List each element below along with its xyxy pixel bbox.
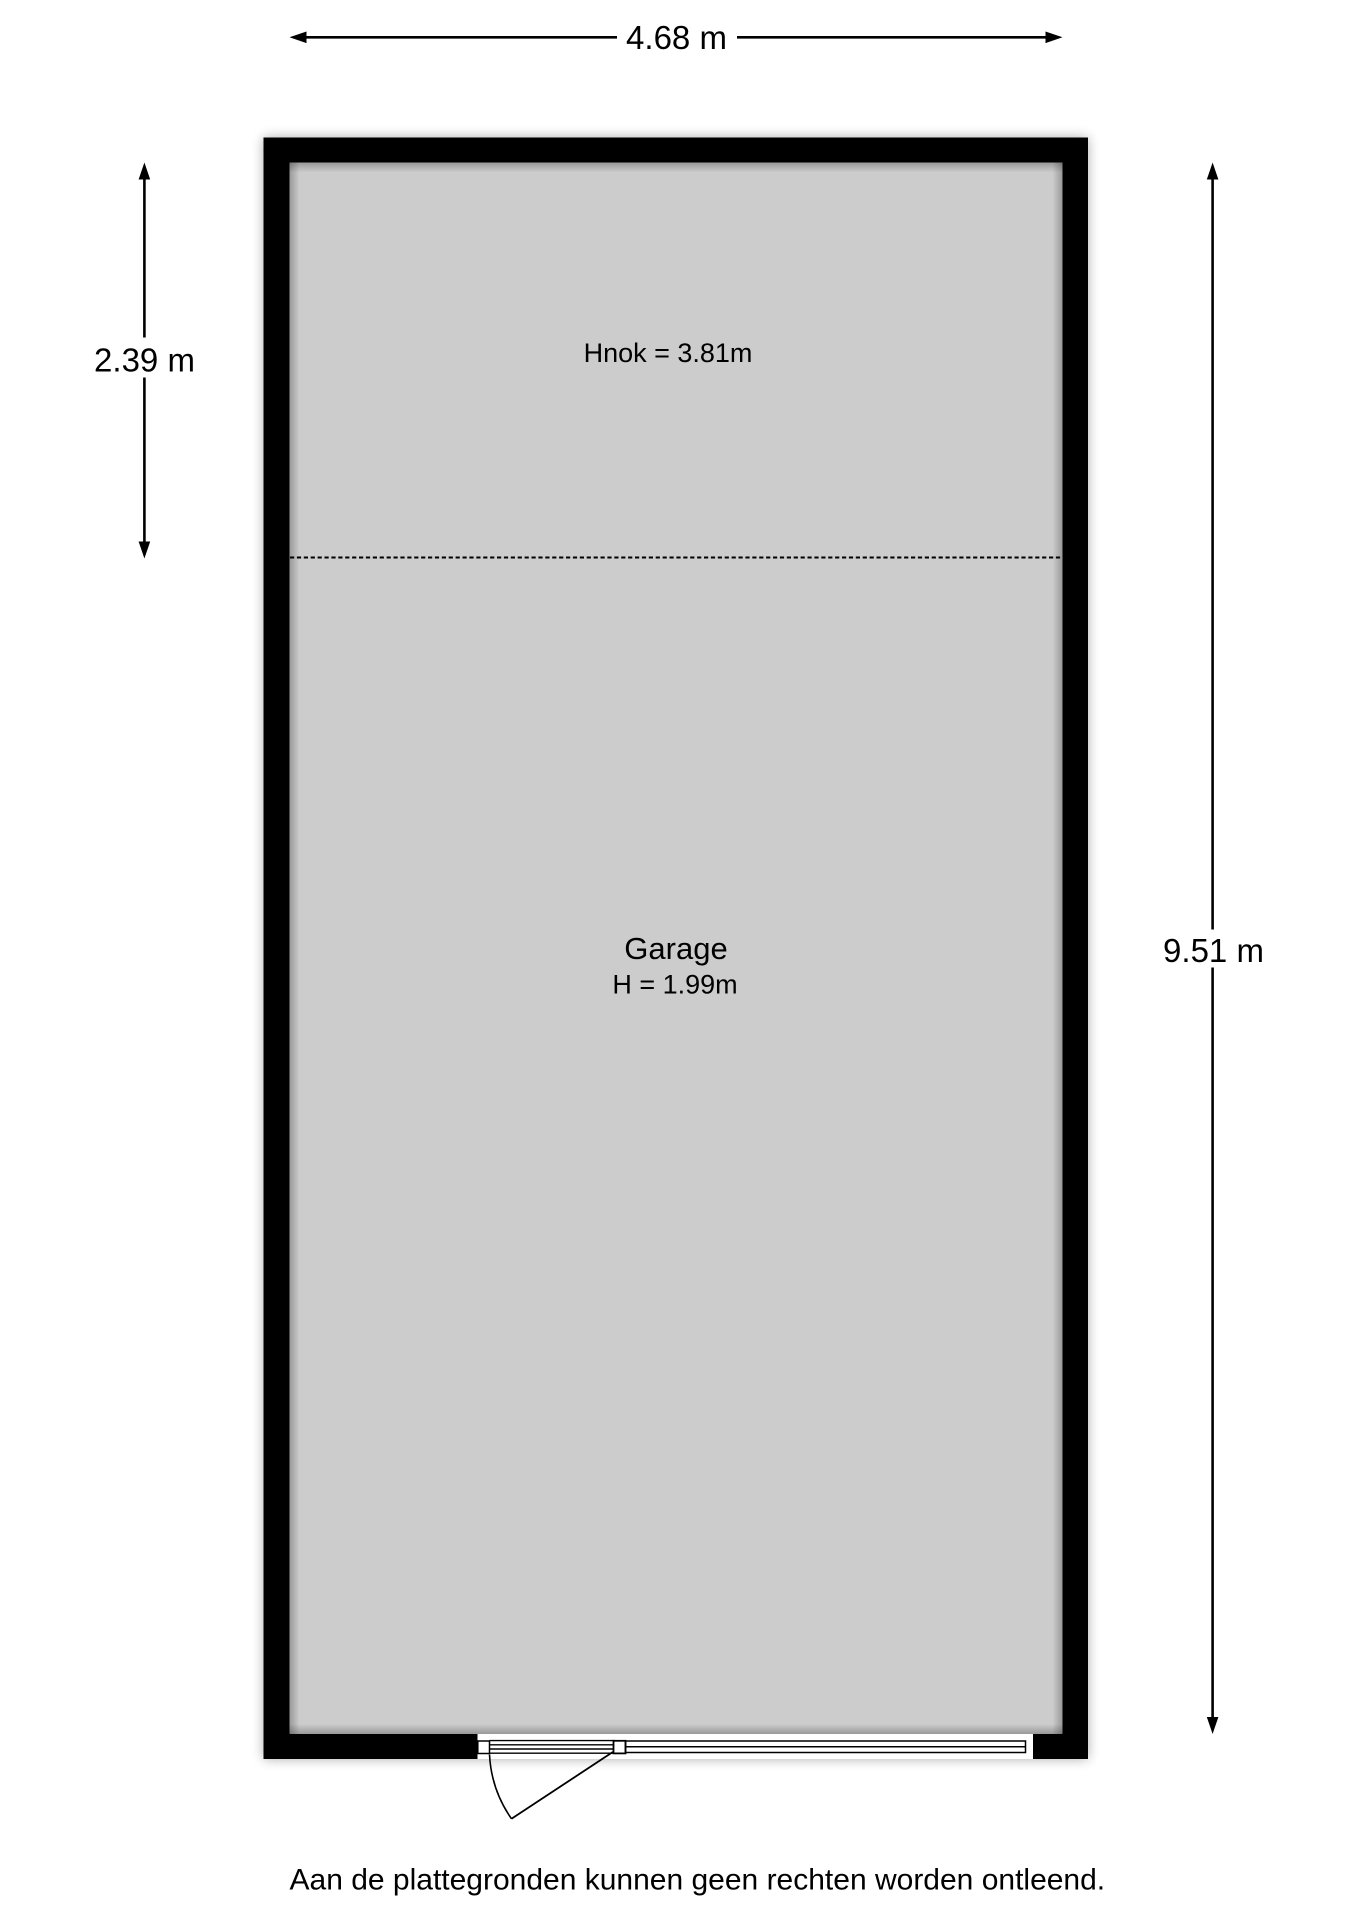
svg-text:Aan de plattegronden kunnen ge: Aan de plattegronden kunnen geen rechten…: [290, 1864, 1106, 1897]
svg-text:2.39 m: 2.39 m: [94, 342, 195, 379]
svg-text:H = 1.99m: H = 1.99m: [612, 970, 737, 1000]
svg-text:4.68 m: 4.68 m: [626, 19, 727, 56]
svg-text:Hnok = 3.81m: Hnok = 3.81m: [584, 338, 753, 368]
svg-text:Garage: Garage: [624, 931, 727, 966]
svg-text:9.51 m: 9.51 m: [1163, 932, 1264, 969]
